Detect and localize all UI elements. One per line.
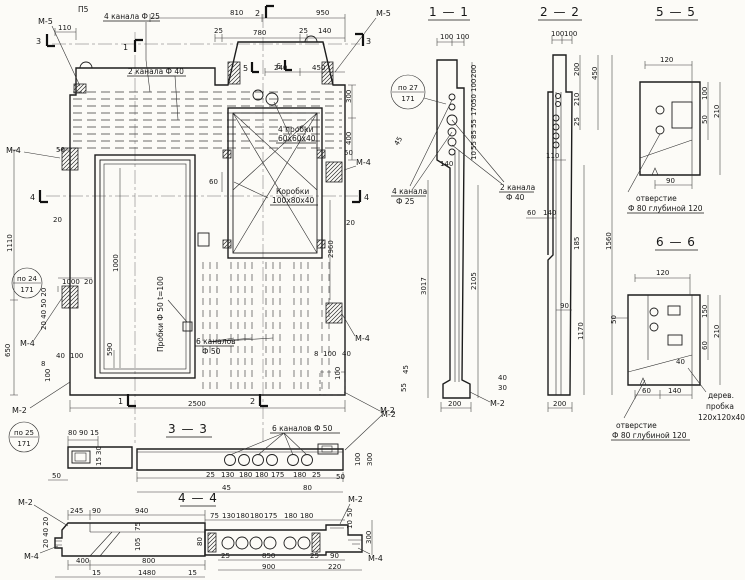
channel-band-vertical: [203, 262, 329, 392]
dim-label: 130: [222, 512, 235, 520]
section-1-1-view: 1 — 1 по 27 171 100 100 200 100 50 170 5…: [391, 5, 535, 412]
embed-marker: М-5: [376, 9, 391, 18]
dim-label: 45: [402, 365, 410, 374]
dim-label: 2960: [327, 240, 335, 258]
dim-label: 15: [95, 457, 103, 466]
plugs-label-2: 60х60х40: [278, 134, 316, 143]
svg-text:по 24: по 24: [17, 275, 38, 283]
dim-label: 90: [666, 177, 675, 185]
dim-label: 60: [527, 209, 536, 217]
view-title: 6 — 6: [656, 235, 696, 249]
dim-label: 40: [342, 350, 351, 358]
svg-text:171: 171: [401, 95, 414, 103]
dim-label: 45: [222, 484, 231, 492]
dim-label: 40: [676, 358, 685, 366]
hole-note-2: Ф 80 глубиной 120: [628, 204, 703, 213]
block-end-hatch-left: [228, 62, 240, 84]
dim-label: 100: [70, 352, 83, 360]
dim-label: 175: [271, 471, 284, 479]
embed-marker: М-2: [380, 406, 395, 415]
dim-label: 50: [470, 94, 478, 103]
dim-label: 40: [498, 374, 507, 382]
dim-label: 55: [400, 383, 408, 392]
dim-label: 25: [206, 471, 215, 479]
flag-label: 2: [250, 397, 255, 406]
dim-label: 60: [701, 341, 709, 350]
dim-label: 100: [701, 87, 709, 100]
dim-label: 650: [4, 344, 12, 357]
dim-label: 210: [573, 93, 581, 106]
dim-label: 60: [642, 387, 651, 395]
boxes-label-1: Коробки: [276, 187, 309, 196]
main-elevation-view: 3 1 2 3 4 4 1 2 5 6 М-5 М-5 М-4 М-4 М-4 …: [4, 5, 396, 452]
flag-label: 1: [123, 43, 128, 52]
loop-label: П5: [78, 5, 89, 14]
dim-label: 90: [330, 552, 339, 560]
lifting-loop-left: [80, 62, 92, 68]
flag-label: 4: [30, 193, 35, 202]
dim-label: 450: [591, 67, 599, 80]
boxes-label-2: 100х80х40: [272, 196, 315, 205]
ref-bubble-po25: по 25 171: [9, 422, 39, 452]
dim-label: 80: [196, 537, 204, 546]
dim-label: 200: [573, 63, 581, 76]
window-opening: [223, 90, 325, 258]
dim-label: 15: [92, 569, 101, 577]
hole-note-1: отверстие: [616, 421, 657, 430]
embed-m4-right-top: [326, 162, 342, 182]
hole-note-1: отверстие: [636, 194, 677, 203]
dim-label: 100: [551, 30, 564, 38]
dim-label: 140: [440, 160, 453, 168]
embed-marker: М-2: [490, 399, 505, 408]
view-title: 3 — 3: [168, 422, 208, 436]
wood-plug-note-3: 120х120х40: [698, 413, 745, 422]
dim-label: 20: [84, 278, 93, 286]
dim-label: 120: [656, 269, 669, 277]
section-6-6-outline: [628, 295, 700, 385]
section-1-1-profile: [437, 60, 470, 398]
dim-label: 180: [239, 471, 252, 479]
dim-label: 80: [303, 484, 312, 492]
dim-label: 100: [564, 30, 577, 38]
hole-note-2: Ф 80 глубиной 120: [612, 431, 687, 440]
dim-label: 780: [253, 29, 266, 37]
dim-label: 25: [310, 552, 319, 560]
dim-label: 450: [312, 64, 325, 72]
dim-label: 110: [58, 24, 71, 32]
dim-label: 180: [255, 471, 268, 479]
dim-label: 300: [366, 453, 374, 466]
dim-label: 180: [300, 512, 313, 520]
dim-label: 3017: [420, 277, 428, 295]
channels-50-label-2: Ф 50: [202, 347, 221, 356]
dim-label: 105: [134, 538, 142, 551]
dim-label: 45: [393, 135, 404, 147]
view-title: 5 — 5: [656, 5, 696, 19]
channels-40-label: 2 канала Ф 40: [128, 67, 184, 76]
dim-label: 1000: [62, 278, 80, 286]
dim-label: 8: [314, 350, 318, 358]
dim-label: 75: [210, 512, 219, 520]
section-4-4-view: 4 — 4 М-2 М-4 М-2 М-4 245 90 940 75 130 …: [18, 491, 383, 577]
dim-label: 810: [230, 9, 243, 17]
dim-label: 75: [134, 522, 142, 531]
dim-label: 1110: [6, 234, 14, 252]
view-title: 4 — 4: [178, 491, 218, 505]
small-box-channel: [183, 322, 192, 331]
small-box-door-right: [198, 233, 209, 246]
dim-label: 180: [293, 471, 306, 479]
dim-label: 90: [79, 429, 88, 437]
dim-label: 100: [334, 367, 342, 380]
engineering-drawing-sheet: 3 1 2 3 4 4 1 2 5 6 М-5 М-5 М-4 М-4 М-4 …: [0, 0, 745, 580]
dim-label: 100: [470, 79, 478, 92]
channels-50-label: 6 каналов Ф 50: [272, 424, 333, 433]
channels-25-label: 4 канала Ф 25: [104, 12, 160, 21]
embed-marker: М-2: [348, 495, 363, 504]
embed-marker: М-4: [368, 554, 383, 563]
dim-label: 50: [346, 508, 354, 517]
section-6-6-view: 6 — 6 120 50 150 60 210 40 60 140 дерев.…: [610, 235, 745, 440]
dim-label: 1170: [577, 322, 585, 340]
dim-label: 170: [470, 103, 478, 116]
dim-label: 220: [328, 563, 341, 571]
dim-label: 245: [70, 507, 83, 515]
embed-m4-left-mid: [62, 286, 78, 308]
dim-label: 240: [274, 64, 287, 72]
flag-label: 2: [255, 9, 260, 18]
flag-label: 3: [366, 37, 371, 46]
dim-label: 1000: [112, 254, 120, 272]
section-4-4-left-piece: [55, 523, 205, 556]
flag-label: 1: [118, 397, 123, 406]
embed-marker: М-2: [18, 498, 33, 507]
dim-label: 20 40 20: [42, 517, 50, 548]
dim-label: 30: [95, 446, 103, 455]
dim-label: 10: [470, 151, 478, 160]
dim-label: 110: [546, 152, 559, 160]
dim-label: 20: [346, 219, 355, 227]
dim-label: 8: [41, 360, 45, 368]
channels-40-label-1: 2 канала: [500, 183, 535, 192]
ref-bubble-po24: по 24 171: [12, 268, 42, 298]
dim-label: 185: [573, 237, 581, 250]
flag-label: 3: [36, 37, 41, 46]
section-2-2-view: 2 — 2 100 100 200 210 450 25 110 60 140 …: [526, 5, 613, 412]
plugs-f50-label: Пробки Ф 50 t=100: [156, 276, 165, 352]
dim-label: 60: [209, 178, 218, 186]
dim-label: 180: [284, 512, 297, 520]
dim-label: 400: [345, 132, 353, 145]
view-title: 2 — 2: [540, 5, 580, 19]
dim-label: 80: [68, 429, 77, 437]
wood-plug-note-1: дерев.: [708, 391, 734, 400]
dim-label: 180: [236, 512, 249, 520]
dim-label: 210: [713, 105, 721, 118]
dim-label: 300: [345, 90, 353, 103]
section-3-3-view: 3 — 3 6 каналов Ф 50 80 90 15 30 15 50 2…: [48, 406, 395, 492]
section-5-5-view: 5 — 5 120 100 50 210 90 отверстие Ф 80 г…: [627, 5, 721, 213]
channels-25-label-2: Ф 25: [396, 197, 415, 206]
dim-label: 50: [701, 115, 709, 124]
dim-label: 1560: [605, 232, 613, 250]
view-title: 1 — 1: [429, 5, 469, 19]
dim-label: 20 40 50 20: [40, 288, 48, 330]
section-5-5-outline: [640, 82, 700, 175]
dim-label: 55: [470, 141, 478, 150]
dim-label: 140: [543, 209, 556, 217]
dim-label: 130: [221, 471, 234, 479]
dim-label: 140: [318, 27, 331, 35]
dim-label: 120: [660, 56, 673, 64]
dim-label: 90: [560, 302, 569, 310]
embed-marker: М-5: [38, 17, 53, 26]
embed-marker: М-4: [20, 339, 35, 348]
dim-label: 150: [701, 305, 709, 318]
svg-text:171: 171: [20, 286, 33, 294]
dim-label: 15: [188, 569, 197, 577]
section-4-4-strip: [205, 525, 362, 555]
dim-label: 1480: [138, 569, 156, 577]
dim-label: 25: [299, 27, 308, 35]
dim-label: 300: [365, 531, 373, 544]
embed-marker: М-4: [6, 146, 21, 155]
dim-label: 30: [498, 384, 507, 392]
embed-marker: М-4: [24, 552, 39, 561]
wood-plug-note-2: пробка: [706, 402, 734, 411]
dim-label: 90: [92, 507, 101, 515]
dim-label: 140: [668, 387, 681, 395]
svg-text:171: 171: [17, 440, 30, 448]
dim-label: 25: [221, 552, 230, 560]
dim-label: 100: [440, 33, 453, 41]
embed-m4-right-mid: [326, 303, 342, 323]
dim-label: 200: [470, 65, 478, 78]
channels-40-label-2: Ф 40: [506, 193, 525, 202]
dim-label: 2105: [470, 272, 478, 290]
dim-label: 590: [106, 343, 114, 356]
dim-label: 25: [214, 27, 223, 35]
embed-marker: М-2: [12, 406, 27, 415]
plugs-label-1: 4 пробки: [278, 125, 314, 134]
flag-label: 4: [364, 193, 369, 202]
dim-label: 200: [448, 400, 461, 408]
embed-marker: М-4: [356, 158, 371, 167]
dim-label: 15: [90, 429, 99, 437]
dim-label: 2500: [188, 400, 206, 408]
dim-label: 950: [316, 9, 329, 17]
dim-label: 850: [262, 552, 275, 560]
dim-label: 800: [142, 557, 155, 565]
ref-bubble-po27: по 27 171: [391, 75, 425, 109]
dim-label: 940: [135, 507, 148, 515]
svg-text:по 25: по 25: [14, 429, 34, 437]
dim-label: 50: [52, 472, 61, 480]
channels-25-label-1: 4 канала: [392, 187, 427, 196]
dim-label: 175: [264, 512, 277, 520]
dim-label: 50: [344, 149, 353, 157]
dim-label: 50: [610, 315, 618, 324]
dim-label: 25: [312, 471, 321, 479]
dim-label: 40: [56, 352, 65, 360]
dim-label: 20: [53, 216, 62, 224]
embed-marker: М-4: [355, 334, 370, 343]
dim-label: 210: [713, 325, 721, 338]
channels-50-label-1: 6 каналов: [196, 337, 236, 346]
dim-label: 100: [456, 33, 469, 41]
drawing-canvas: 3 1 2 3 4 4 1 2 5 6 М-5 М-5 М-4 М-4 М-4 …: [0, 0, 745, 580]
dim-label: 25: [573, 117, 581, 126]
dim-label: 100: [354, 453, 362, 466]
dim-label: 180: [250, 512, 263, 520]
dim-label: 85: [470, 130, 478, 139]
dim-label: 50: [56, 146, 65, 154]
dim-label: 10: [346, 520, 354, 529]
dim-label: 100: [323, 350, 336, 358]
dim-label: 200: [553, 400, 566, 408]
dim-label: 50: [336, 473, 345, 481]
dim-label: 55: [470, 119, 478, 128]
dim-label: 100: [44, 369, 52, 382]
svg-text:по 27: по 27: [398, 84, 418, 92]
dim-label: 900: [262, 563, 275, 571]
flag-label: 5: [243, 64, 248, 73]
dim-label: 400: [76, 557, 89, 565]
